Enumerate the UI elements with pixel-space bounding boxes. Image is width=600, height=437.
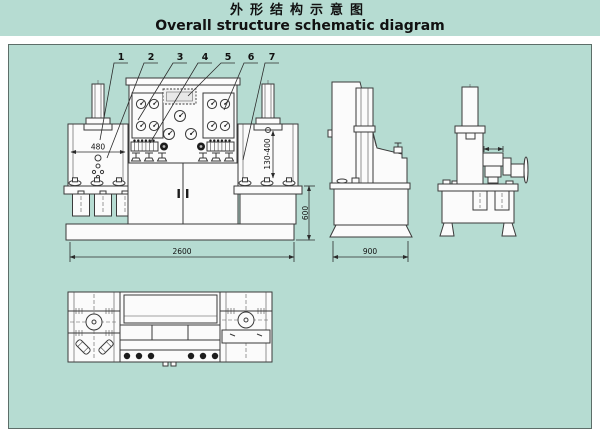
side-foot bbox=[330, 225, 412, 237]
right-stand-shelf bbox=[234, 186, 302, 194]
handwheel-icon bbox=[524, 157, 528, 183]
svg-text:6: 6 bbox=[248, 52, 255, 63]
svg-text:7: 7 bbox=[269, 52, 276, 63]
top-right-column bbox=[238, 312, 254, 328]
door-handle-left bbox=[178, 189, 180, 198]
dimension-600-label: 600 bbox=[301, 206, 310, 221]
stand-tabletop bbox=[438, 184, 518, 191]
handwheel-hub bbox=[511, 164, 524, 177]
front-base bbox=[66, 224, 294, 240]
side-tabletop bbox=[330, 183, 410, 189]
stand-upper-post bbox=[462, 87, 478, 128]
right-column-post bbox=[262, 84, 274, 122]
control-console bbox=[126, 78, 240, 224]
dimension-2600-label: 2600 bbox=[172, 247, 191, 256]
gauge-panel-right bbox=[203, 93, 234, 138]
dimension-480-label: 480 bbox=[91, 143, 106, 152]
cabinet-doors bbox=[128, 163, 238, 224]
svg-text:3: 3 bbox=[177, 52, 184, 63]
door-handle-right bbox=[186, 189, 188, 198]
top-right-drawer bbox=[222, 330, 270, 343]
dimension-130-400-label: 130-400 bbox=[263, 138, 272, 170]
left-column-post bbox=[92, 84, 104, 122]
right-stand-box bbox=[240, 194, 296, 224]
stand-lower-column bbox=[457, 133, 483, 184]
dimension-900-label: 900 bbox=[363, 247, 378, 256]
svg-text:4: 4 bbox=[202, 52, 209, 63]
svg-text:5: 5 bbox=[225, 52, 232, 63]
top-view bbox=[68, 292, 272, 366]
schematic-drawing: 480 bbox=[0, 0, 600, 437]
svg-text:1: 1 bbox=[118, 52, 125, 63]
gauge-panel-left bbox=[132, 93, 163, 138]
top-left-column bbox=[86, 314, 102, 330]
side-pedestal bbox=[334, 189, 408, 225]
side-column bbox=[356, 88, 373, 183]
svg-text:2: 2 bbox=[148, 52, 155, 63]
